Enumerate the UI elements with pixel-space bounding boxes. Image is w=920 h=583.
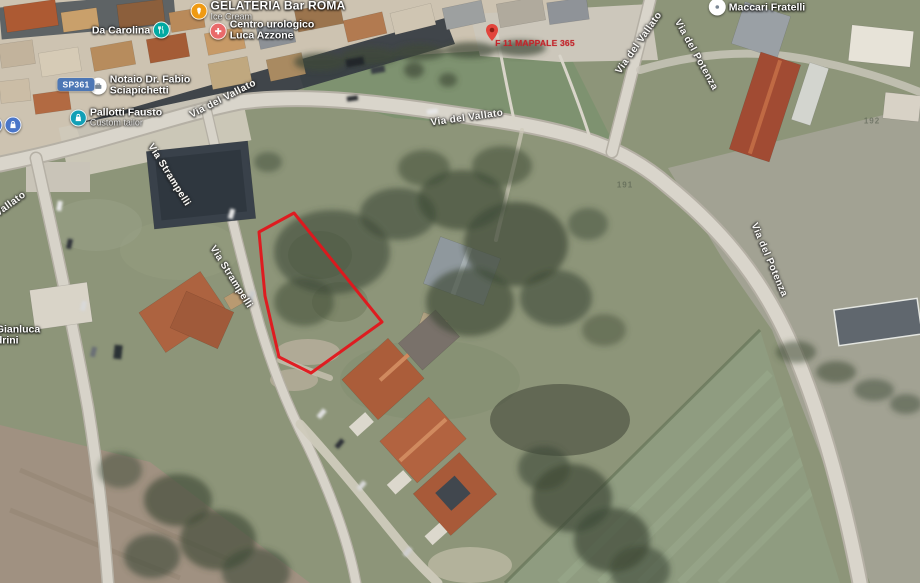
- poi-maccari-fratelli[interactable]: Maccari Fratelli: [709, 0, 805, 16]
- restaurant-icon: [153, 22, 170, 39]
- poi-centro-urologico[interactable]: Centro urologico Luca Azzone: [210, 20, 315, 43]
- poi-sublabel: Custom tailor: [90, 119, 162, 129]
- poi-label: drini: [0, 336, 40, 347]
- poi-da-carolina[interactable]: Da Carolina: [92, 22, 170, 39]
- poi-icon: [709, 0, 726, 16]
- shopping-icon: [70, 109, 87, 126]
- cadastral-label: F 11 MAPPALE 365: [495, 38, 575, 48]
- parcel-number: 192: [864, 117, 880, 126]
- store-icon: [0, 117, 3, 134]
- route-badge-sp361: SP361: [57, 74, 94, 92]
- satellite-map[interactable]: Da Carolina GELATERIA Bar ROMA Ice Cream…: [0, 0, 920, 583]
- poi-gianluca[interactable]: Gianluca drini: [0, 325, 40, 348]
- store-icon[interactable]: [5, 117, 22, 134]
- poi-label: Maccari Fratelli: [729, 1, 805, 13]
- poi-label: Luca Azzone: [230, 31, 315, 42]
- poi-notaio-sciapichetti[interactable]: Notaio Dr. Fabio Sciapichetti: [90, 75, 191, 98]
- poi-pallotti-fausto[interactable]: Pallotti Fausto Custom tailor: [70, 107, 162, 128]
- poi-label: Sciapichetti: [110, 86, 191, 97]
- parcel-number: 191: [617, 181, 633, 190]
- poi-label: Da Carolina: [92, 24, 150, 36]
- medical-icon: [210, 23, 227, 40]
- red-map-pin[interactable]: [486, 24, 499, 46]
- ice-cream-icon: [191, 2, 208, 19]
